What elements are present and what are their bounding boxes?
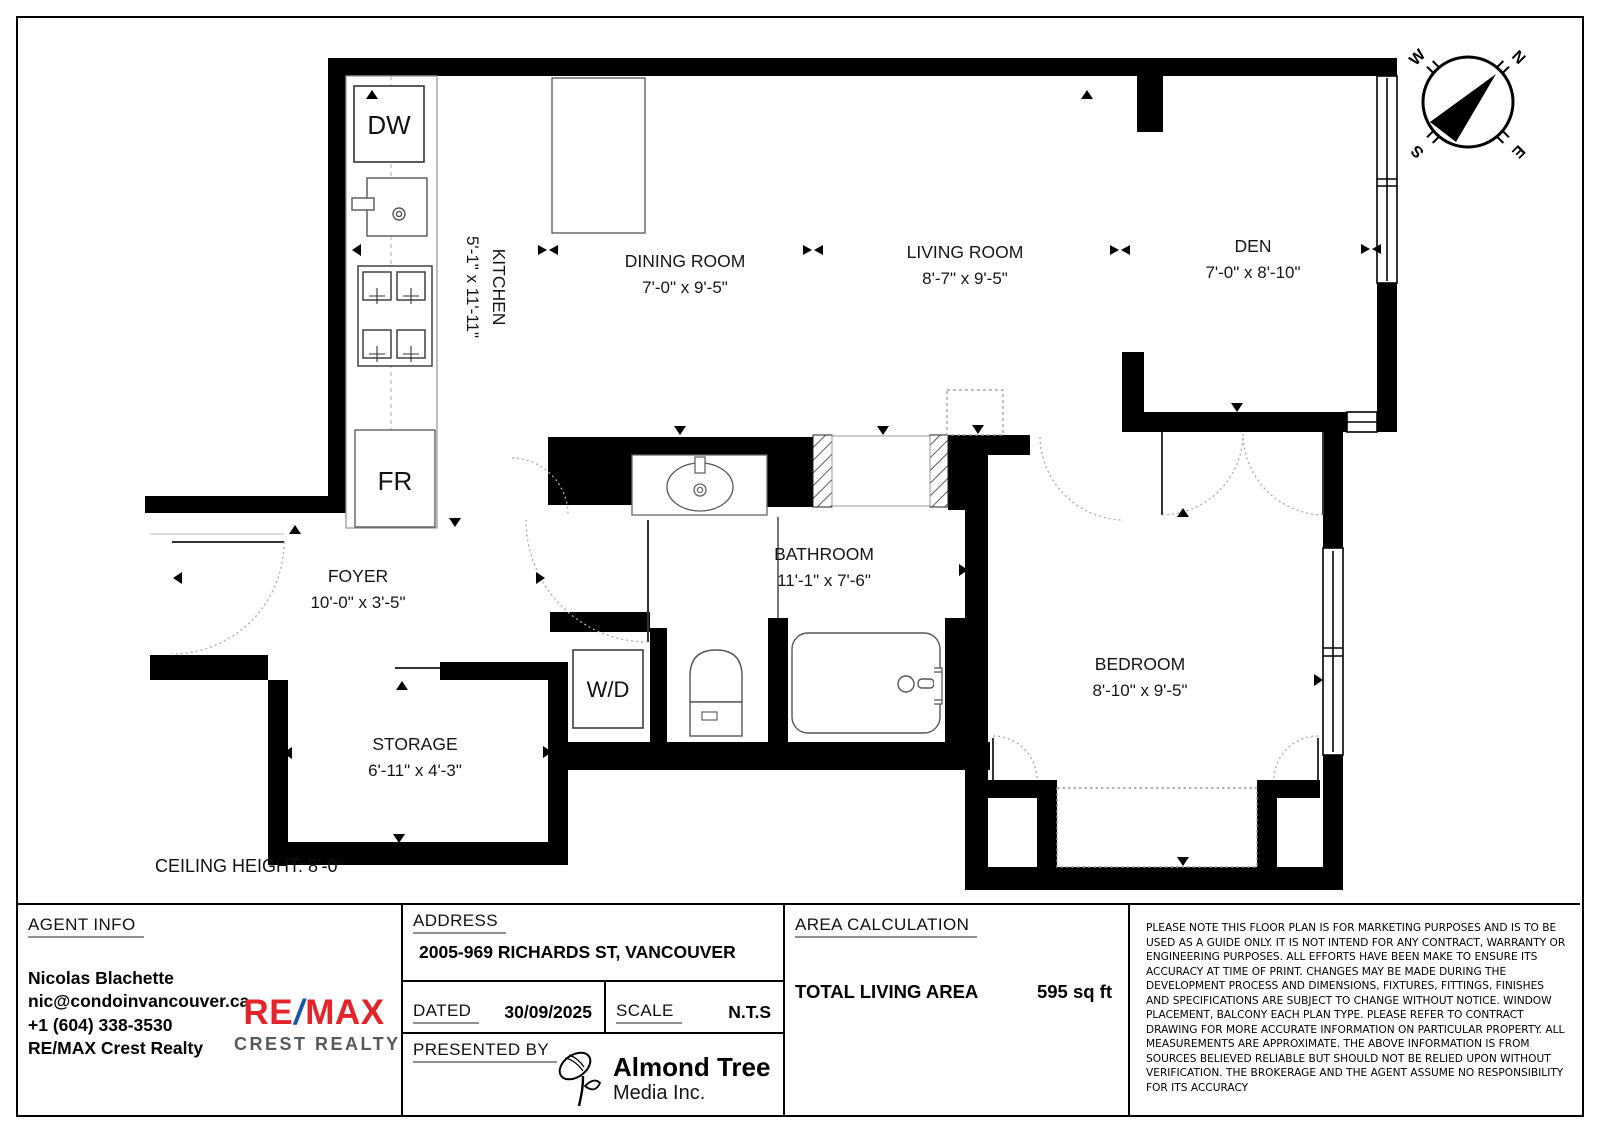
svg-text:STORAGE: STORAGE xyxy=(372,734,457,754)
info-panel: AGENT INFO Nicolas Blachette nic@condoin… xyxy=(16,903,1580,1115)
floor-plan-drawing: DW FR xyxy=(0,0,1600,900)
ceiling-height-label: CEILING HEIGHT: 8'-0" xyxy=(155,856,344,876)
svg-text:DEN: DEN xyxy=(1235,236,1272,256)
address-header: ADDRESS xyxy=(413,911,506,934)
area-calculation-cell: AREA CALCULATION TOTAL LIVING AREA 595 s… xyxy=(785,905,1130,1115)
agent-email: nic@condoinvancouver.ca xyxy=(28,990,249,1013)
remax-logo: RE/MAX CREST REALTY xyxy=(234,993,394,1055)
scale-value: N.T.S xyxy=(728,1002,771,1023)
svg-text:BATHROOM: BATHROOM xyxy=(774,544,874,564)
bedroom-window xyxy=(1323,548,1343,755)
almond-tree-name: Almond Tree xyxy=(613,1054,770,1081)
svg-text:8'-7" x 9'-5": 8'-7" x 9'-5" xyxy=(922,269,1008,288)
remax-max: MAX xyxy=(305,993,384,1032)
den-corner-window xyxy=(1347,412,1377,432)
svg-text:FOYER: FOYER xyxy=(328,566,388,586)
agent-info-cell: AGENT INFO Nicolas Blachette nic@condoin… xyxy=(16,905,403,1115)
svg-text:10'-0" x 3'-5": 10'-0" x 3'-5" xyxy=(310,593,405,612)
fridge-label: FR xyxy=(378,466,413,496)
svg-text:6'-11" x 4'-3": 6'-11" x 4'-3" xyxy=(368,761,462,780)
agent-details: Nicolas Blachette nic@condoinvancouver.c… xyxy=(28,967,249,1060)
room-name: KITCHEN xyxy=(489,249,509,326)
dated-value: 30/09/2025 xyxy=(504,1002,592,1023)
washer-dryer-box: W/D xyxy=(573,650,643,728)
agent-phone: +1 (604) 338-3530 xyxy=(28,1014,249,1037)
svg-text:BEDROOM: BEDROOM xyxy=(1095,654,1185,674)
room-dims: 5'-1" x 11'-11" xyxy=(463,236,482,338)
address-cell: ADDRESS 2005-969 RICHARDS ST, VANCOUVER … xyxy=(403,905,785,1115)
compass-letter-n: N xyxy=(1508,48,1528,68)
bedroom-closet xyxy=(1057,788,1257,867)
address-row: ADDRESS 2005-969 RICHARDS ST, VANCOUVER xyxy=(403,905,783,982)
svg-text:LIVING ROOM: LIVING ROOM xyxy=(907,242,1024,262)
disclaimer-cell: PLEASE NOTE THIS FLOOR PLAN IS FOR MARKE… xyxy=(1130,905,1580,1115)
dishwasher-box: DW xyxy=(354,86,424,162)
dated-scale-row: DATED 30/09/2025 SCALE N.T.S xyxy=(403,982,783,1034)
room-label-foyer: FOYER 10'-0" x 3'-5" xyxy=(310,566,405,612)
agent-name: Nicolas Blachette xyxy=(28,967,249,990)
svg-text:8'-10" x 9'-5": 8'-10" x 9'-5" xyxy=(1092,681,1187,700)
pocket-door-wall xyxy=(813,435,948,507)
floor-plan-page: DW FR xyxy=(0,0,1600,1131)
svg-text:7'-0" x 8'-10": 7'-0" x 8'-10" xyxy=(1205,263,1300,282)
svg-text:11'-1" x 7'-6": 11'-1" x 7'-6" xyxy=(777,571,871,590)
area-calculation-header: AREA CALCULATION xyxy=(795,915,977,938)
remax-crest-realty: CREST REALTY xyxy=(234,1034,394,1055)
presented-by-header: PRESENTED BY xyxy=(413,1040,557,1063)
dining-table xyxy=(552,78,645,233)
agent-brokerage: RE/MAX Crest Realty xyxy=(28,1037,249,1060)
total-living-area-label: TOTAL LIVING AREA xyxy=(795,981,978,1003)
scale-cell: SCALE N.T.S xyxy=(606,982,783,1032)
room-label-dining: DINING ROOM 7'-0" x 9'-5" xyxy=(625,251,746,297)
room-label-bedroom: BEDROOM 8'-10" x 9'-5" xyxy=(1092,654,1187,700)
room-label-storage: STORAGE 6'-11" x 4'-3" xyxy=(368,734,462,780)
tub-faucet xyxy=(918,679,934,688)
address-value: 2005-969 RICHARDS ST, VANCOUVER xyxy=(419,942,783,963)
almond-tree-logo: Almond Tree Media Inc. xyxy=(555,1048,770,1110)
remax-re: RE xyxy=(243,993,293,1032)
compass: N W E S xyxy=(1406,46,1528,161)
bathtub xyxy=(792,633,942,733)
svg-text:7'-0" x 9'-5": 7'-0" x 9'-5" xyxy=(642,278,728,297)
walls xyxy=(145,58,1397,890)
room-label-den: DEN 7'-0" x 8'-10" xyxy=(1205,236,1300,282)
agent-info-header: AGENT INFO xyxy=(28,915,144,938)
presented-by-row: PRESENTED BY Almond Tree Media Inc. xyxy=(403,1034,783,1113)
toilet xyxy=(690,650,742,736)
room-label-kitchen: KITCHEN 5'-1" x 11'-11" xyxy=(463,236,509,338)
washer-dryer-label: W/D xyxy=(587,677,630,702)
scale-header: SCALE xyxy=(616,1001,682,1024)
compass-letter-e: E xyxy=(1508,141,1528,161)
room-label-bathroom: BATHROOM 11'-1" x 7'-6" xyxy=(774,544,874,590)
dated-header: DATED xyxy=(413,1001,479,1024)
almond-tree-sub: Media Inc. xyxy=(613,1082,770,1104)
disclaimer-text: PLEASE NOTE THIS FLOOR PLAN IS FOR MARKE… xyxy=(1130,905,1580,1095)
compass-letter-s: S xyxy=(1408,141,1428,161)
total-living-area-value: 595 sq ft xyxy=(1037,981,1112,1003)
fridge-box: FR xyxy=(355,430,435,527)
compass-needle xyxy=(1430,74,1496,142)
dishwasher-label: DW xyxy=(367,110,411,140)
room-label-living: LIVING ROOM 8'-7" x 9'-5" xyxy=(907,242,1024,288)
almond-icon xyxy=(555,1048,607,1110)
remax-slash: / xyxy=(294,993,304,1032)
tub-drain xyxy=(898,676,914,692)
stove xyxy=(358,266,432,366)
compass-letter-w: W xyxy=(1406,46,1429,69)
dated-cell: DATED 30/09/2025 xyxy=(403,982,606,1032)
bathroom-vanity xyxy=(632,455,767,515)
svg-text:DINING ROOM: DINING ROOM xyxy=(625,251,746,271)
